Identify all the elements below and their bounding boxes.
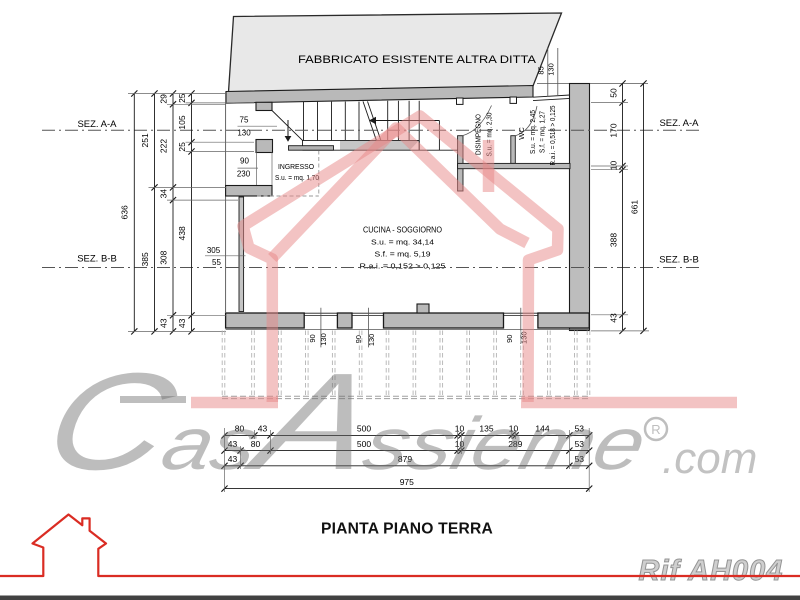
svg-text:43: 43 [159,318,169,328]
svg-text:170: 170 [609,123,619,137]
svg-text:10: 10 [609,161,619,171]
svg-text:75: 75 [240,116,249,125]
svg-text:105: 105 [177,115,187,129]
svg-text:R.a.i. = 0,152 > 0,125: R.a.i. = 0,152 > 0,125 [360,262,446,271]
svg-text:S.u. = mq. 2,45: S.u. = mq. 2,45 [530,110,537,154]
svg-text:SEZ. A-A: SEZ. A-A [659,118,699,129]
svg-text:222: 222 [159,139,169,153]
svg-text:SEZ. A-A: SEZ. A-A [77,119,117,130]
svg-text:25: 25 [177,142,187,152]
svg-text:SEZ. B-B: SEZ. B-B [77,254,117,265]
svg-text:90: 90 [308,334,317,342]
svg-text:PIANTA PIANO TERRA: PIANTA PIANO TERRA [321,521,493,538]
svg-text:385: 385 [140,252,150,266]
svg-text:438: 438 [177,226,187,240]
svg-text:CUCINA - SOGGIORNO: CUCINA - SOGGIORNO [363,226,442,235]
svg-text:R: R [651,422,660,437]
svg-text:43: 43 [609,313,619,323]
svg-text:S.f. = mq. 5,19: S.f. = mq. 5,19 [375,250,431,259]
svg-text:130: 130 [546,63,555,76]
svg-text:FABBRICATO ESISTENTE ALTRA DIT: FABBRICATO ESISTENTE ALTRA DITTA [298,54,537,66]
svg-text:S.f. = mq. 1,27: S.f. = mq. 1,27 [540,111,547,153]
svg-text:INGRESSO: INGRESSO [278,164,315,171]
svg-text:R.a.i. = 0,518 > 0,125: R.a.i. = 0,518 > 0,125 [550,105,557,165]
svg-text:130: 130 [237,129,251,138]
svg-text:90: 90 [240,157,249,166]
svg-text:50: 50 [609,88,619,98]
svg-text:230: 230 [237,170,251,179]
svg-text:34: 34 [159,189,169,199]
svg-text:25: 25 [177,93,187,103]
svg-text:388: 388 [609,233,619,247]
svg-text:SEZ. B-B: SEZ. B-B [659,255,699,266]
svg-text:55: 55 [212,258,221,267]
svg-text:S.u. = mq. 34,14: S.u. = mq. 34,14 [371,238,434,247]
svg-text:90: 90 [505,335,514,343]
svg-text:29: 29 [159,94,169,104]
svg-text:251: 251 [140,133,150,147]
svg-text:CasAssieme: CasAssieme [33,344,670,499]
svg-text:Rif AH004: Rif AH004 [639,555,784,587]
svg-text:85: 85 [537,66,546,74]
svg-text:DISIMPEGNO: DISIMPEGNO [476,113,483,155]
svg-text:43: 43 [177,318,187,328]
svg-text:WC: WC [517,127,526,140]
svg-text:.com: .com [662,434,757,483]
svg-text:661: 661 [630,200,640,214]
svg-text:636: 636 [120,205,130,219]
svg-text:308: 308 [159,250,169,264]
svg-text:305: 305 [207,246,221,255]
